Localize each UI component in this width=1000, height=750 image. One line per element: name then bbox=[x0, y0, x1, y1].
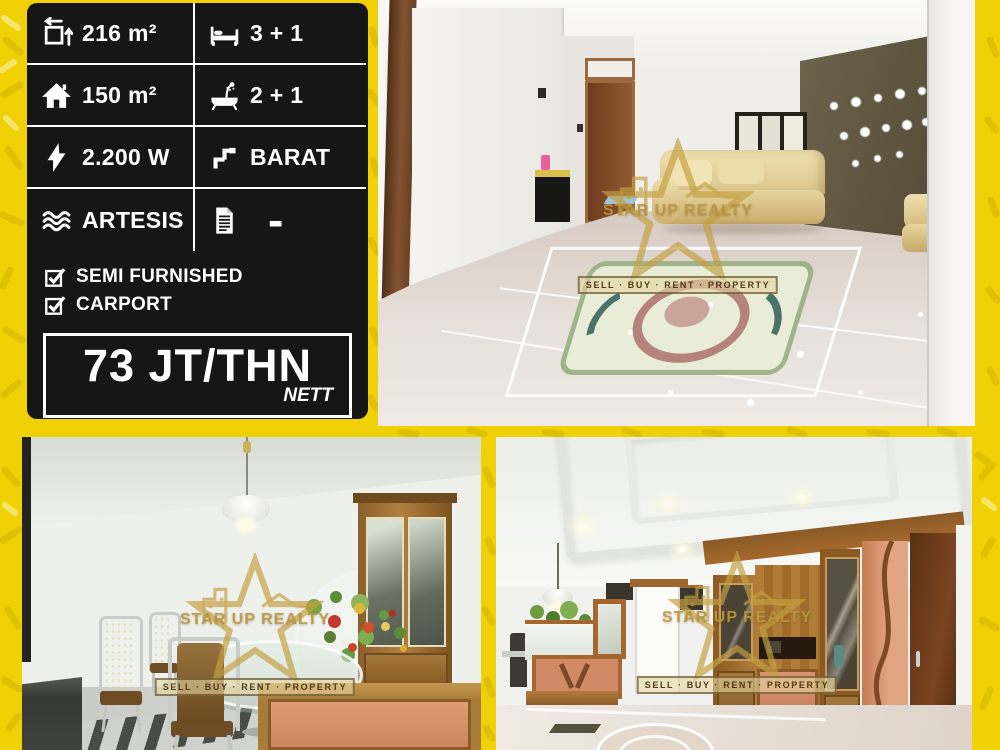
spec-value: 216 m² bbox=[82, 20, 157, 47]
partition-glass bbox=[525, 620, 593, 660]
sideboard-panel bbox=[268, 699, 471, 750]
sofa-set bbox=[660, 150, 825, 232]
light-switch bbox=[538, 88, 546, 98]
feature-list: SEMI FURNISHED CARPORT bbox=[27, 251, 368, 321]
header-trim bbox=[630, 579, 688, 587]
chair-leg bbox=[136, 705, 142, 732]
floor-medallion bbox=[556, 261, 817, 375]
chair-back-cushion bbox=[104, 621, 133, 693]
flower-cutouts bbox=[840, 132, 848, 140]
spec-water: ARTESIS bbox=[27, 189, 193, 251]
flower-greens bbox=[306, 599, 322, 615]
lamp-glow bbox=[550, 601, 564, 613]
water-icon bbox=[40, 204, 73, 237]
feature-carport: CARPORT bbox=[44, 291, 368, 319]
spec-value: ARTESIS bbox=[82, 207, 184, 234]
spec-certificate: - bbox=[193, 189, 366, 251]
spec-bathrooms: 2 + 1 bbox=[193, 65, 366, 127]
spec-bedrooms: 3 + 1 bbox=[193, 3, 366, 65]
wall-opening bbox=[606, 583, 633, 600]
light-switch bbox=[577, 124, 583, 132]
pendant-lamp bbox=[540, 543, 576, 613]
chair-leg bbox=[101, 705, 107, 732]
chair-leg bbox=[152, 673, 155, 691]
recessed-light bbox=[796, 493, 807, 501]
photo-family-room: STAR UP REALTY SELL · BUY · RENT · PROPE… bbox=[496, 437, 972, 750]
vase-item bbox=[834, 645, 844, 667]
spec-building-area: 150 m² bbox=[27, 65, 193, 127]
door-handle bbox=[916, 651, 920, 667]
pass-through-window bbox=[593, 599, 626, 659]
power-icon bbox=[40, 141, 73, 174]
sofa-shadow bbox=[664, 224, 824, 234]
lamp-stem bbox=[557, 543, 559, 591]
partition-plants bbox=[530, 605, 544, 619]
spec-power: 2.200 W bbox=[27, 127, 193, 189]
spec-value: 150 m² bbox=[82, 82, 157, 109]
dining-chair bbox=[99, 621, 145, 733]
feature-label: CARPORT bbox=[76, 294, 172, 316]
property-listing-flyer: 216 m² 3 + 1 bbox=[0, 0, 1000, 750]
chair-seat-cushion bbox=[100, 691, 142, 705]
spec-value: 2.200 W bbox=[82, 144, 170, 171]
photo-dining-room: STAR UP REALTY SELL · BUY · RENT · PROPE… bbox=[22, 437, 481, 750]
spec-value: 2 + 1 bbox=[250, 82, 303, 109]
price-box: 73 JT/THN NETT bbox=[43, 333, 352, 418]
feature-label: SEMI FURNISHED bbox=[76, 266, 243, 288]
flower-blooms-yellow bbox=[354, 603, 365, 614]
pink-cup bbox=[541, 155, 550, 170]
bath-icon bbox=[208, 79, 241, 112]
lamp-glow bbox=[236, 517, 256, 533]
chevron-decor bbox=[559, 663, 574, 689]
checkbox-checked-icon bbox=[44, 266, 66, 288]
sliding-door bbox=[635, 587, 680, 693]
feature-semi-furnished: SEMI FURNISHED bbox=[44, 263, 368, 291]
cabinet-glass bbox=[825, 557, 859, 691]
sofa-seat bbox=[660, 190, 825, 224]
bed-icon bbox=[208, 17, 241, 50]
recessed-light bbox=[576, 521, 590, 531]
document-icon bbox=[208, 204, 241, 237]
sofa-arm bbox=[652, 178, 678, 224]
direction-icon bbox=[208, 141, 241, 174]
recessed-light bbox=[676, 545, 688, 554]
chevron-decor bbox=[575, 663, 590, 689]
spec-value: BARAT bbox=[250, 144, 330, 171]
spec-land-area: 216 m² bbox=[27, 3, 193, 65]
cabinet-glass bbox=[719, 583, 753, 661]
dining-chair-foreground bbox=[166, 643, 242, 750]
side-table bbox=[535, 170, 570, 222]
lamp-cap bbox=[243, 441, 251, 453]
spec-orientation: BARAT bbox=[193, 127, 366, 189]
niche-item bbox=[767, 641, 781, 653]
flower-cutouts bbox=[830, 102, 838, 110]
sideboard bbox=[258, 683, 481, 750]
transom-window bbox=[585, 58, 635, 80]
chair-seat-cushion bbox=[171, 721, 233, 737]
spec-value: - bbox=[268, 210, 284, 230]
recessed-light bbox=[662, 499, 674, 508]
sofa-cushion bbox=[718, 158, 764, 184]
spec-panel: 216 m² 3 + 1 bbox=[27, 3, 368, 419]
threshold-strip bbox=[549, 724, 601, 733]
pendant-lamp bbox=[220, 437, 272, 537]
right-pillar bbox=[927, 0, 975, 426]
photo-living-room: STAR UP REALTY SELL · BUY · RENT · PROPE… bbox=[378, 0, 975, 426]
chair-back-cushion bbox=[177, 643, 224, 723]
dark-door-edge bbox=[22, 437, 31, 662]
chair-leg bbox=[227, 735, 234, 750]
chair-leg bbox=[172, 735, 179, 750]
counter-edge bbox=[22, 677, 82, 750]
price-frame: 73 JT/THN NETT bbox=[43, 333, 352, 418]
cabinet-crown bbox=[353, 493, 457, 503]
house-icon bbox=[40, 79, 73, 112]
checkbox-checked-icon bbox=[44, 294, 66, 316]
price-amount: 73 JT/THN bbox=[56, 342, 339, 389]
area-icon bbox=[40, 17, 73, 50]
blue-doormat bbox=[604, 196, 639, 204]
spec-value: 3 + 1 bbox=[250, 20, 303, 47]
floor-sparkles bbox=[628, 330, 633, 335]
spec-grid: 216 m² 3 + 1 bbox=[27, 3, 368, 251]
flower-blooms bbox=[328, 615, 341, 628]
flower-cutouts bbox=[852, 160, 859, 167]
